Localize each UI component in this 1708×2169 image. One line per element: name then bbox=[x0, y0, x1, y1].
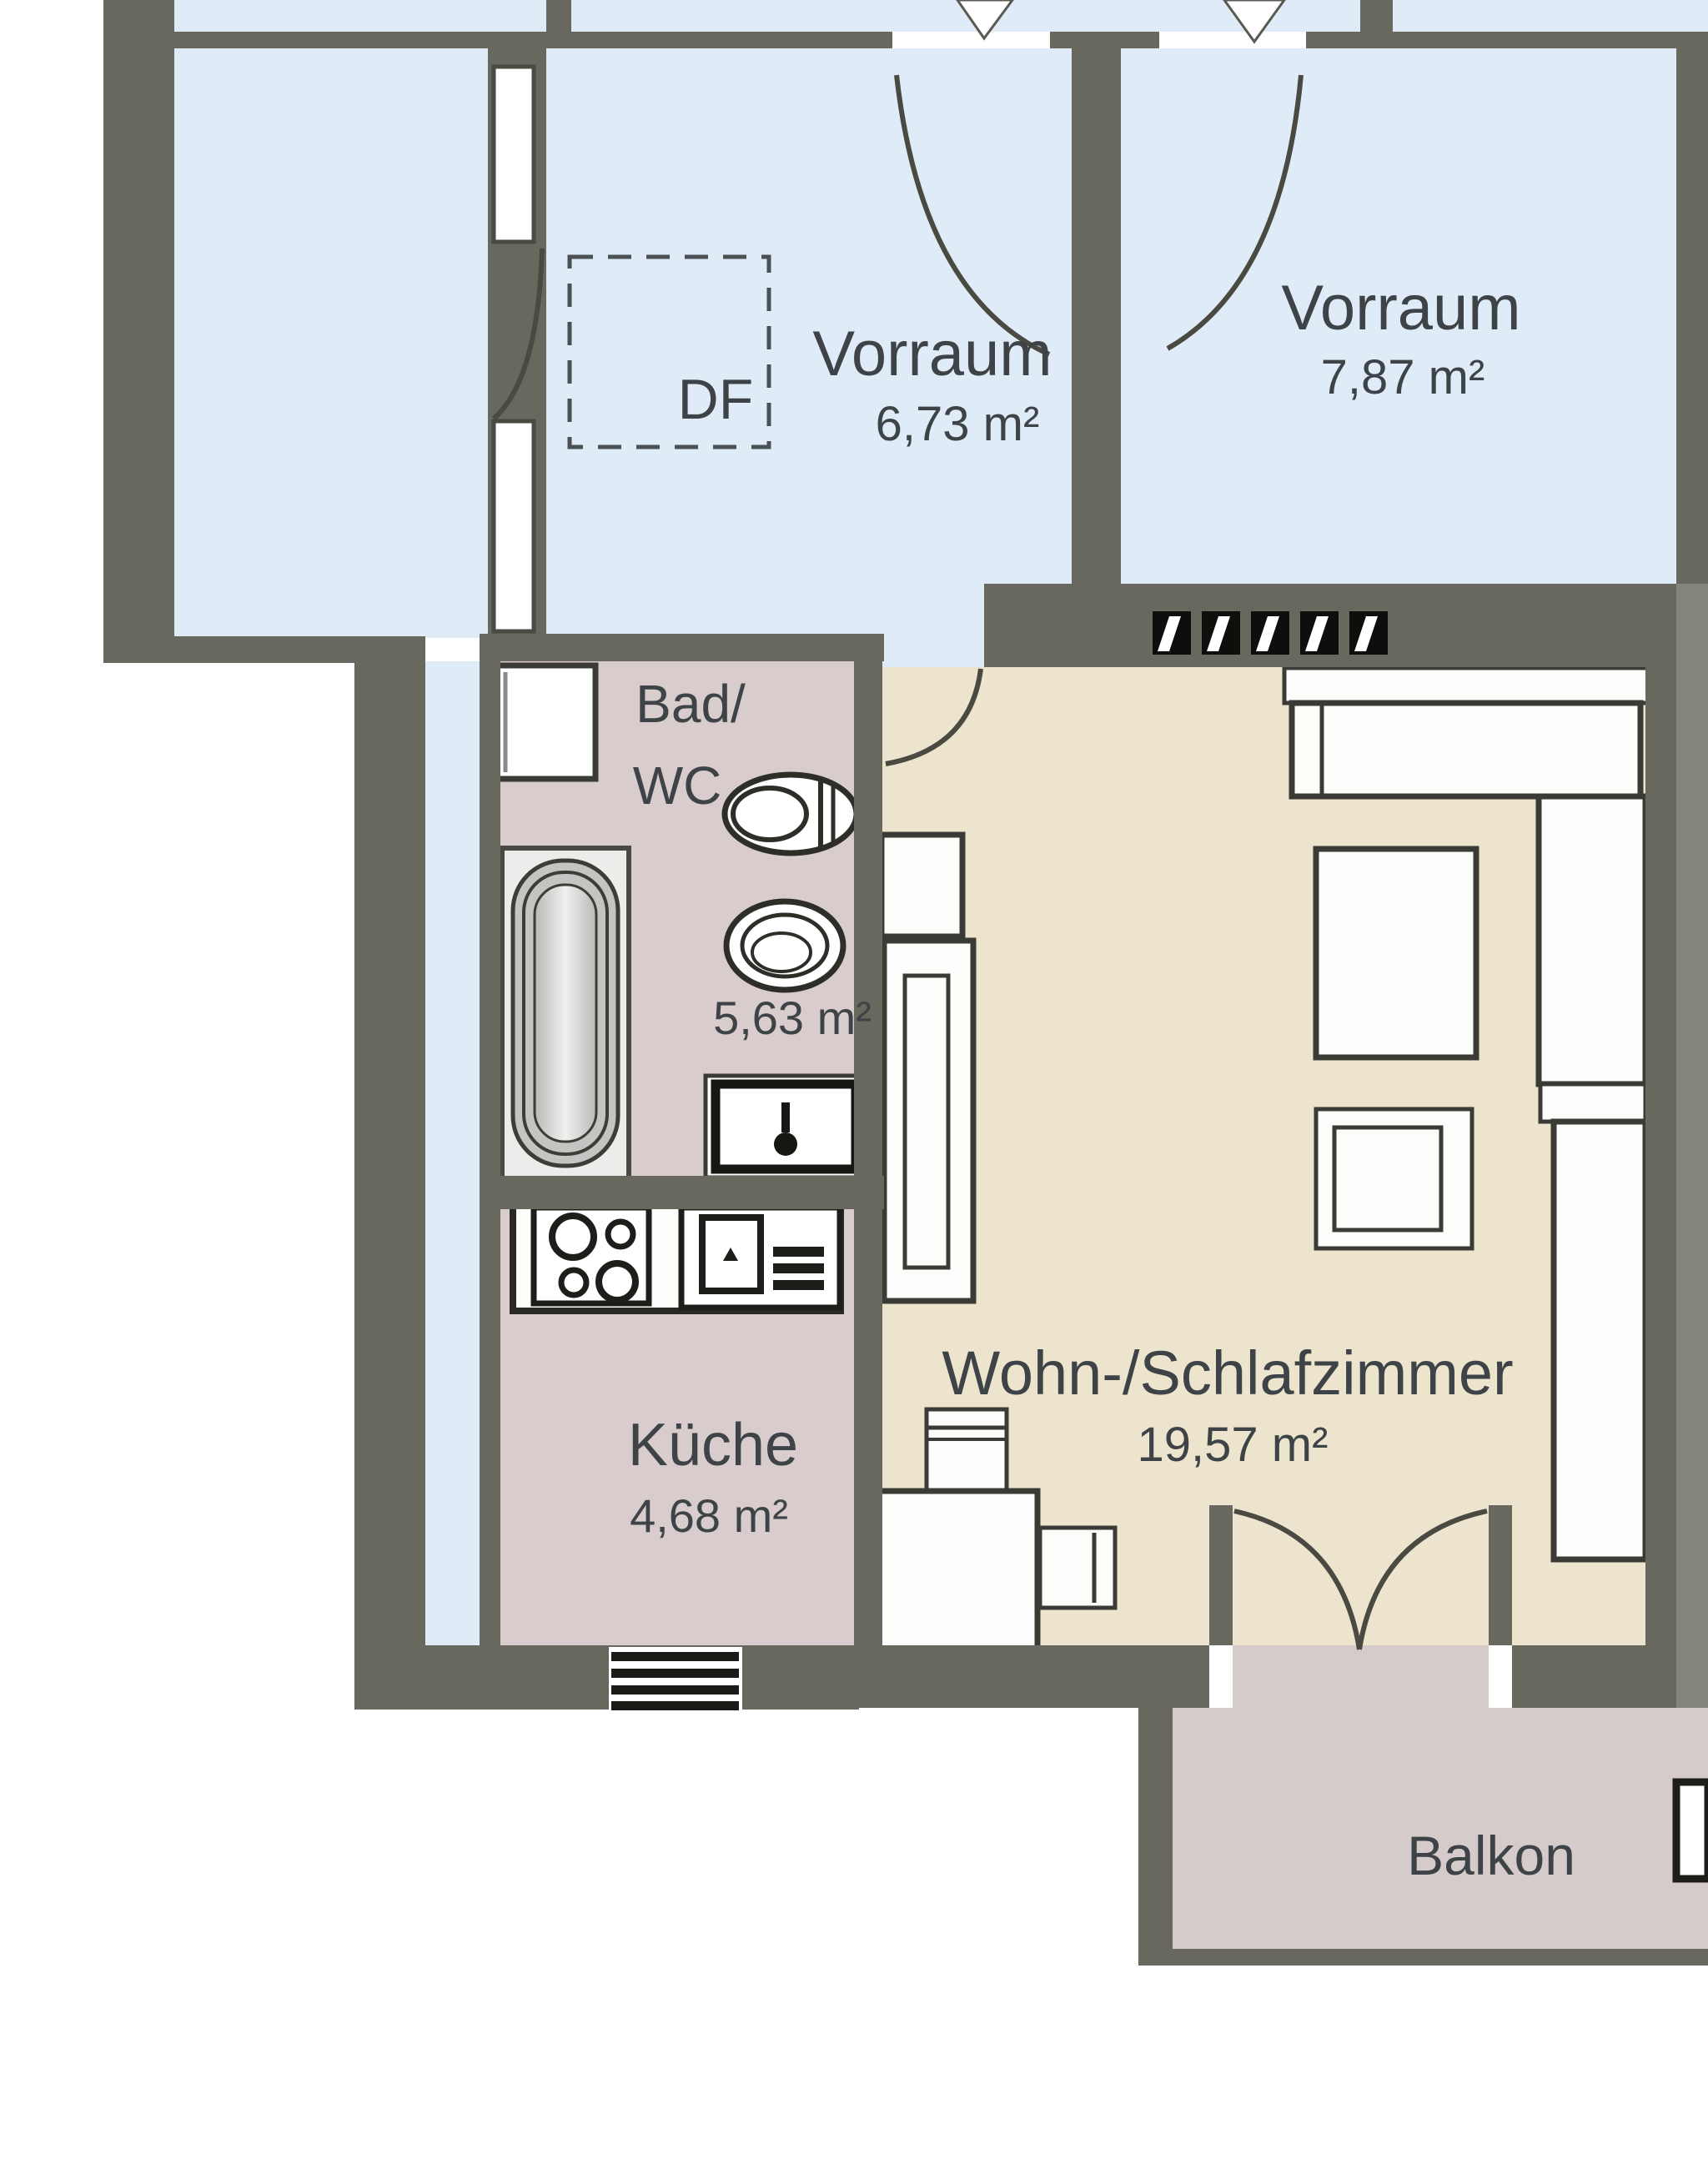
balcony-window-marker bbox=[1676, 1782, 1708, 1879]
area-kueche: 4,68 m² bbox=[630, 1489, 788, 1542]
wardrobe-top-band bbox=[1540, 1084, 1645, 1122]
label-vorraum-left: Vorraum bbox=[812, 319, 1052, 389]
label-bad-line2: WC bbox=[633, 756, 722, 816]
wall-opening bbox=[494, 421, 534, 631]
room-fill-corridor bbox=[425, 661, 480, 1645]
label-wohnzimmer: Wohn-/Schlafzimmer bbox=[942, 1338, 1513, 1408]
wardrobe bbox=[1554, 1122, 1645, 1559]
kitchen-fixtures bbox=[513, 1201, 841, 1311]
area-bad: 5,63 m² bbox=[713, 992, 872, 1044]
wall-opening bbox=[494, 67, 534, 242]
sink-icon bbox=[726, 901, 843, 990]
area-vorraum-left: 6,73 m² bbox=[876, 397, 1040, 451]
chair-right bbox=[1040, 1528, 1115, 1608]
armchair bbox=[1316, 1109, 1472, 1248]
floor-plan: DF Vorraum 6,73 m² Vorraum 7,87 m² Bad/ … bbox=[0, 0, 1708, 2169]
label-vorraum-right: Vorraum bbox=[1281, 273, 1520, 344]
washing-machine-icon bbox=[706, 1076, 866, 1177]
toilet-icon bbox=[725, 775, 857, 853]
vent-grille bbox=[609, 1647, 742, 1712]
table bbox=[1316, 849, 1476, 1057]
area-wohnzimmer: 19,57 m² bbox=[1138, 1418, 1329, 1472]
label-bad-line1: Bad/ bbox=[635, 674, 746, 734]
balcony-door-jamb bbox=[1489, 1505, 1512, 1645]
room-fill-left-room bbox=[174, 48, 488, 638]
stove-icon bbox=[534, 1208, 649, 1303]
balcony-door-jamb bbox=[1209, 1505, 1233, 1645]
bathtub-icon bbox=[502, 848, 629, 1178]
label-kueche: Küche bbox=[628, 1412, 798, 1479]
chair-top bbox=[927, 1409, 1007, 1490]
room-fill-balkon-threshold bbox=[1233, 1645, 1489, 1708]
desk bbox=[879, 1491, 1037, 1653]
hatch-marks bbox=[1153, 611, 1388, 655]
shaft-box bbox=[490, 665, 595, 779]
room-fill-top-strip bbox=[174, 0, 1708, 32]
label-balkon: Balkon bbox=[1407, 1825, 1575, 1886]
area-vorraum-right: 7,87 m² bbox=[1321, 350, 1485, 404]
shelf-unit bbox=[882, 835, 973, 1301]
kitchen-sink-icon bbox=[681, 1208, 840, 1308]
label-roof-window: DF bbox=[678, 368, 754, 431]
